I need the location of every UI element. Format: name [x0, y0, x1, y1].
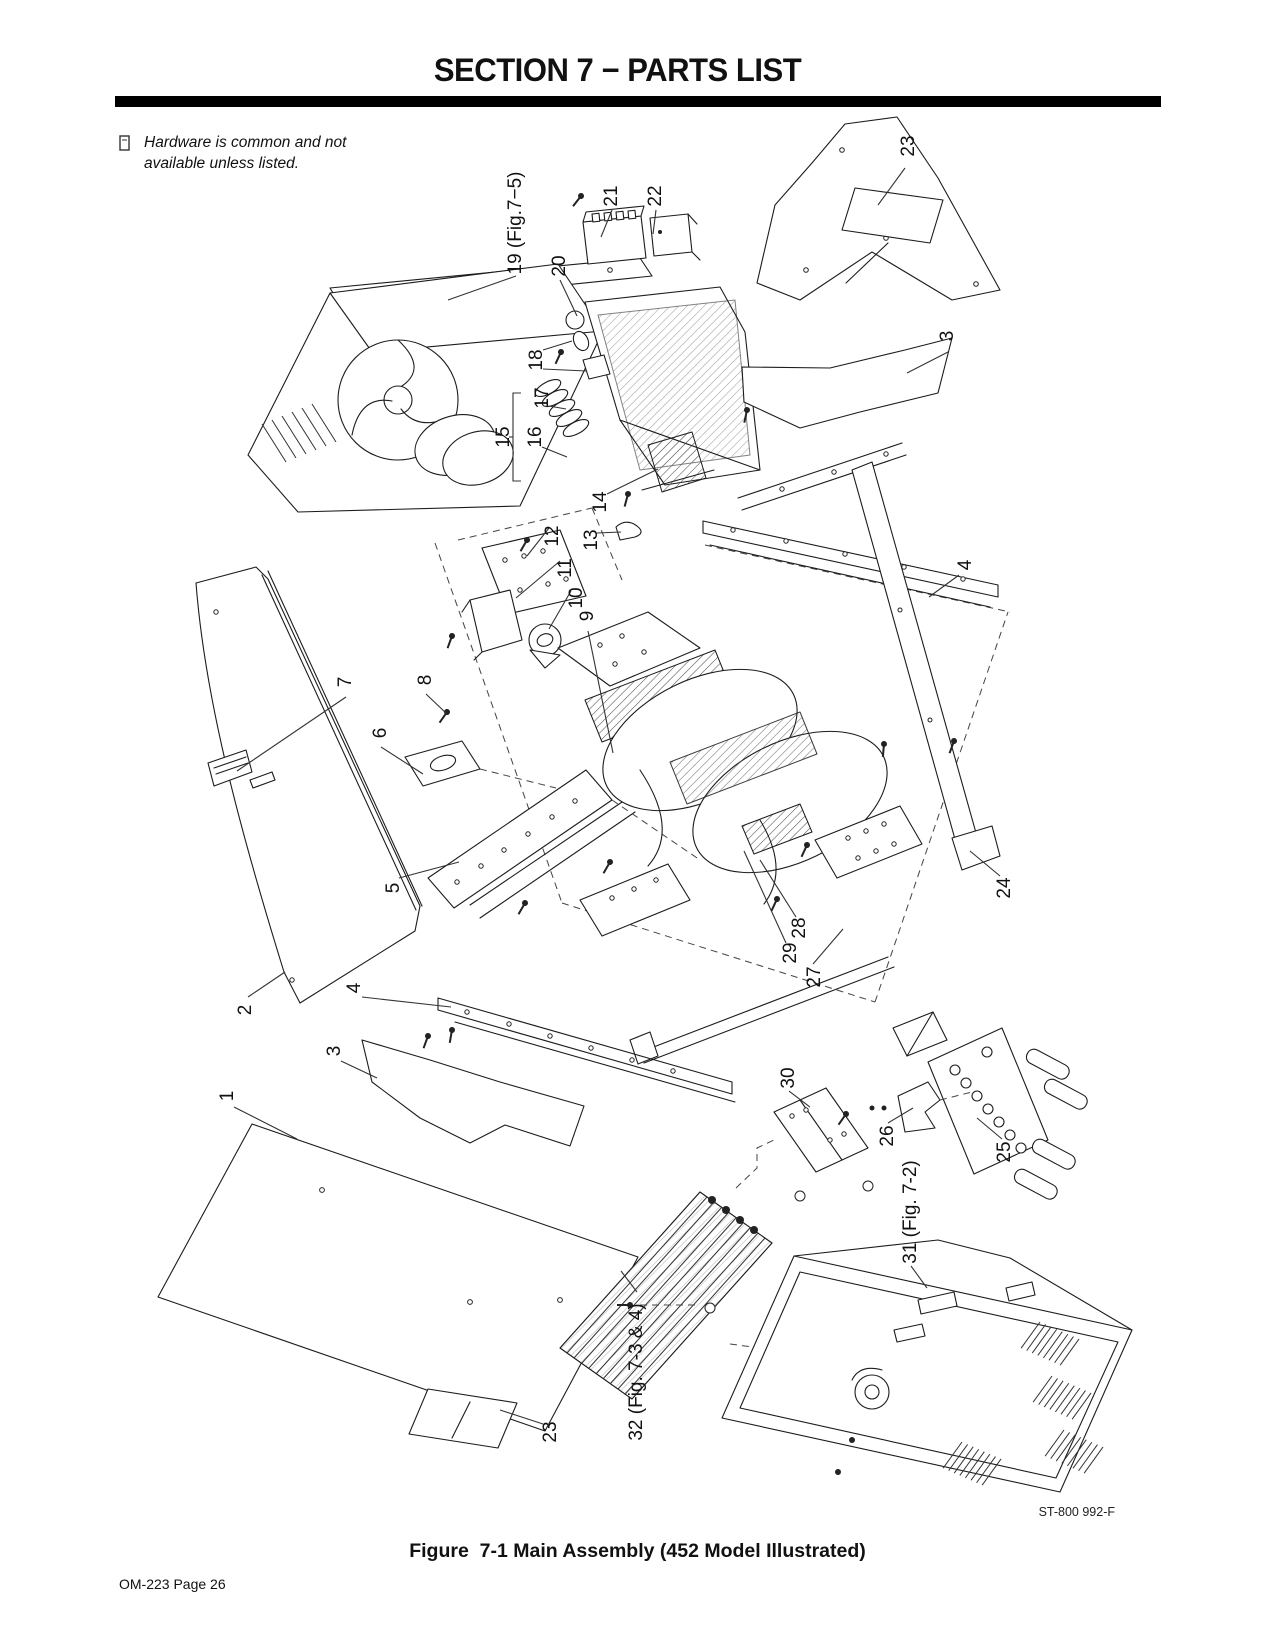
- callout-label-27: 3: [324, 1046, 345, 1057]
- callout-label-16: 4: [955, 559, 976, 570]
- callout-label-20: 5: [383, 883, 404, 894]
- callout-label-4: 20: [549, 255, 570, 276]
- part-bottom-panel: [158, 1124, 638, 1431]
- hardware-note-icon: [119, 135, 130, 175]
- callout-label-14: 10: [566, 587, 587, 608]
- callout-label-22: 28: [789, 917, 810, 938]
- callout-label-28: 1: [217, 1091, 238, 1102]
- callout-label-15: 9: [577, 611, 598, 622]
- part-aux-box: [650, 214, 700, 260]
- part-hinge-bracket: [405, 708, 556, 788]
- callout-label-12: 12: [542, 525, 563, 546]
- callout-label-33: 32 (Fig. 7-3 & 4): [626, 1303, 647, 1440]
- callout-label-2: 21: [601, 185, 622, 206]
- part-transformer: [558, 612, 958, 936]
- callout-leader-16: [929, 575, 959, 597]
- manual-page: 2319 (Fig.7−5)21222018171516143131211109…: [0, 0, 1275, 1650]
- callout-label-5: 18: [526, 349, 547, 370]
- part-wire-clip: [616, 522, 641, 540]
- exploded-diagram: 2319 (Fig.7−5)21222018171516143131211109…: [0, 0, 1275, 1650]
- callout-label-7: 15: [493, 426, 514, 447]
- callout-label-31: 25: [994, 1141, 1015, 1162]
- callout-label-19: 6: [370, 728, 391, 739]
- part-side-panel: [196, 567, 422, 1003]
- callout-label-17: 7: [335, 677, 356, 688]
- part-lug: [529, 624, 561, 668]
- figure-caption: Figure 7-1 Main Assembly (452 Model Illu…: [0, 1540, 1275, 1563]
- callout-label-3: 22: [645, 185, 666, 206]
- callout-label-30: 26: [877, 1125, 898, 1146]
- callout-leader-18: [426, 694, 447, 714]
- part-bent-bracket: [445, 590, 522, 660]
- hardware-note-text: Hardware is common and not available unl…: [144, 132, 374, 175]
- part-baffle-upper: [741, 338, 952, 428]
- callout-label-8: 16: [525, 426, 546, 447]
- title-rule: [115, 96, 1161, 107]
- callout-label-29: 30: [778, 1067, 799, 1088]
- callout-leader-9: [607, 469, 658, 494]
- part-base-runner: [630, 957, 947, 1064]
- part-rear-panel: [757, 117, 1000, 300]
- part-mount-bracket: [736, 1088, 873, 1201]
- callout-leader-24: [813, 929, 843, 964]
- callout-label-25: 2: [235, 1005, 256, 1016]
- page-title: SECTION 7 − PARTS LIST: [19, 52, 1217, 89]
- part-fan-assembly: [248, 258, 652, 512]
- callout-label-18: 8: [415, 675, 436, 686]
- callout-label-21: 24: [994, 877, 1015, 899]
- callout-label-11: 13: [581, 529, 602, 550]
- callout-label-1: 19 (Fig.7−5): [505, 172, 526, 275]
- hardware-note: Hardware is common and not available unl…: [119, 132, 409, 175]
- callout-label-6: 17: [532, 387, 553, 408]
- part-baffle-lower: [362, 1027, 584, 1146]
- callout-label-13: 11: [555, 558, 576, 578]
- callout-label-10: 3: [937, 331, 958, 342]
- page-number: OM-223 Page 26: [119, 1576, 226, 1592]
- drawing-reference: ST-800 992-F: [1039, 1505, 1115, 1519]
- part-front-panel: [722, 1240, 1132, 1492]
- callout-label-9: 14: [590, 491, 611, 513]
- callout-label-24: 27: [804, 966, 825, 987]
- part-terminal-board: [928, 1028, 1090, 1202]
- callout-label-34: 23: [540, 1421, 561, 1442]
- callout-label-26: 4: [344, 982, 365, 993]
- callout-label-0: 23: [898, 135, 919, 156]
- callout-label-23: 29: [780, 942, 801, 963]
- callout-label-32: 31 (Fig. 7-2): [900, 1160, 921, 1263]
- callout-leader-25: [248, 972, 285, 997]
